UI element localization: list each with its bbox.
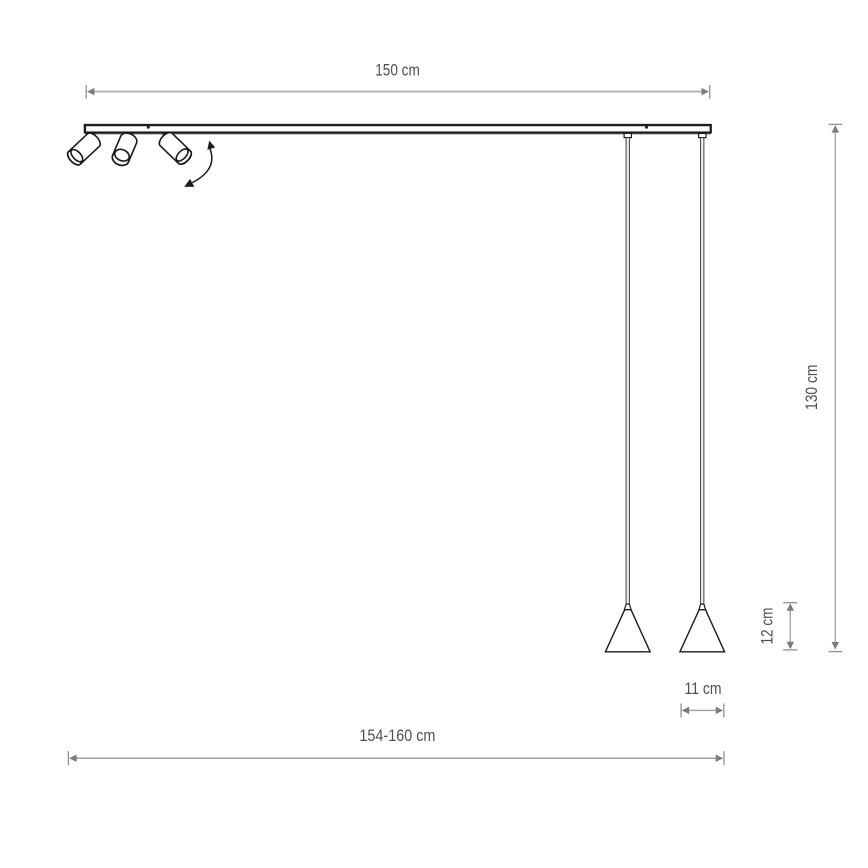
svg-text:11 cm: 11 cm	[685, 680, 722, 698]
svg-text:154-160 cm: 154-160 cm	[359, 727, 435, 745]
svg-text:130 cm: 130 cm	[803, 365, 821, 410]
svg-text:150 cm: 150 cm	[375, 62, 420, 80]
svg-text:12 cm: 12 cm	[758, 608, 776, 645]
